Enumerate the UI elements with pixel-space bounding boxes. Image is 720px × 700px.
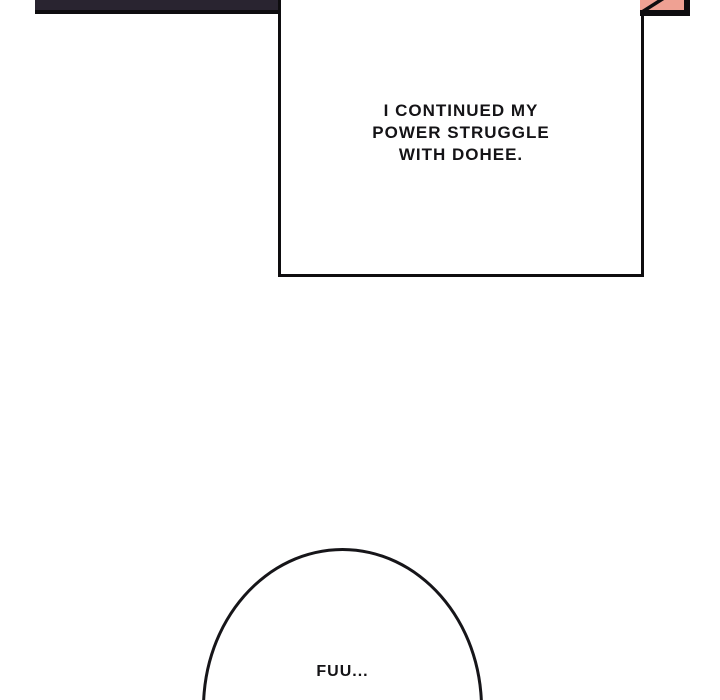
cutoff-panel-fragment-top-right	[640, 0, 690, 16]
speech-bubble-text: FUU...	[242, 662, 443, 682]
panel-fragment-border-bottom	[640, 10, 690, 16]
cutoff-panel-edge-top-left	[35, 0, 278, 14]
comic-page: I CONTINUED MY POWER STRUGGLE WITH DOHEE…	[0, 0, 720, 700]
caption-text: I CONTINUED MY POWER STRUGGLE WITH DOHEE…	[278, 100, 644, 166]
panel-fragment-border-right	[684, 0, 690, 16]
